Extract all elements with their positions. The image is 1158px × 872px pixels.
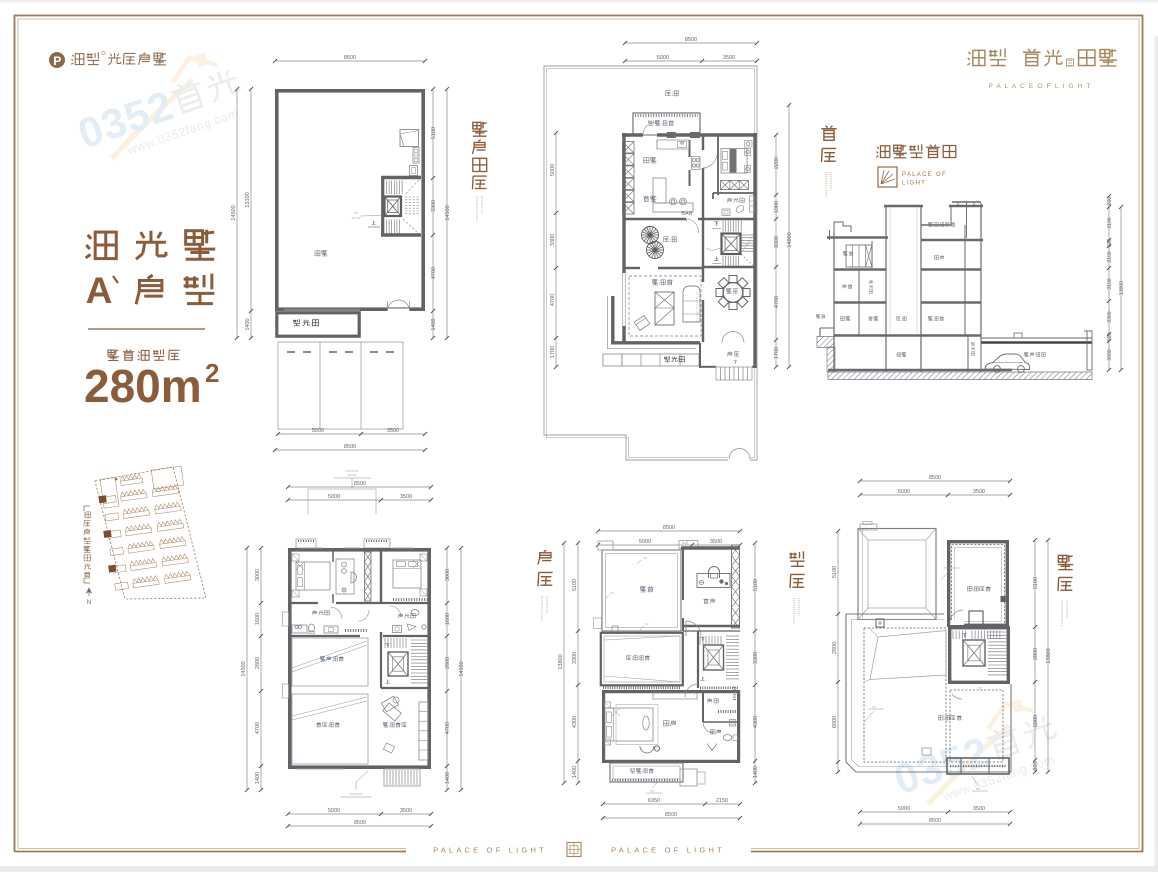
svg-text:2150: 2150	[716, 798, 728, 804]
svg-text:==: ==	[610, 591, 614, 595]
svg-text:1400: 1400	[431, 318, 437, 330]
svg-text:5000: 5000	[639, 539, 651, 545]
svg-text:2800: 2800	[445, 657, 451, 669]
svg-text:13800: 13800	[1046, 648, 1052, 663]
svg-text:13100: 13100	[245, 192, 251, 207]
svg-text:3300: 3300	[550, 234, 556, 246]
svg-text:1600: 1600	[255, 613, 261, 625]
svg-text:4700: 4700	[431, 267, 437, 279]
svg-text:6000: 6000	[1033, 715, 1039, 727]
svg-text:3300: 3300	[774, 236, 780, 248]
svg-text:3300: 3300	[753, 652, 759, 664]
svg-text:==: ==	[976, 787, 980, 791]
svg-text:13800: 13800	[558, 654, 564, 669]
svg-text:1700: 1700	[550, 346, 556, 358]
svg-text:600: 600	[1107, 197, 1113, 206]
svg-text:A: A	[86, 270, 113, 311]
svg-text:3300: 3300	[1107, 311, 1113, 322]
svg-text:6350: 6350	[648, 798, 660, 804]
svg-text:14500: 14500	[459, 661, 465, 676]
svg-text:3500: 3500	[710, 539, 722, 545]
svg-text:1400: 1400	[255, 772, 261, 784]
svg-text:13000: 13000	[1119, 281, 1125, 295]
svg-text:3100: 3100	[1107, 251, 1113, 262]
svg-text:5100: 5100	[753, 579, 759, 591]
svg-text:3500: 3500	[723, 55, 735, 61]
svg-text:3500: 3500	[400, 808, 412, 814]
svg-text:==: ==	[872, 705, 876, 709]
svg-text:3500: 3500	[400, 494, 412, 500]
svg-text:5000: 5000	[328, 808, 340, 814]
svg-text:3000: 3000	[445, 569, 451, 581]
svg-text:800: 800	[1033, 761, 1039, 770]
svg-text:5000: 5000	[657, 55, 669, 61]
svg-text:5000: 5000	[328, 494, 340, 500]
svg-text:3600: 3600	[1107, 349, 1113, 360]
svg-text:8500: 8500	[344, 444, 356, 450]
svg-text:P: P	[53, 54, 61, 68]
svg-text:3000: 3000	[255, 569, 261, 581]
svg-text:==: ==	[650, 789, 654, 793]
svg-text:3300: 3300	[572, 652, 578, 664]
svg-text:==: ==	[643, 556, 647, 560]
svg-text:5000: 5000	[312, 428, 324, 434]
svg-text:3300: 3300	[431, 200, 437, 212]
svg-text:14500: 14500	[231, 205, 237, 220]
svg-text:2800: 2800	[1033, 648, 1039, 660]
svg-text:14500: 14500	[445, 205, 451, 220]
svg-text:3500: 3500	[973, 806, 985, 812]
svg-text:1400: 1400	[753, 766, 759, 778]
svg-text:2: 2	[205, 358, 219, 388]
svg-text:3500: 3500	[387, 428, 399, 434]
svg-text:4300: 4300	[753, 716, 759, 728]
svg-text:5100: 5100	[832, 566, 838, 578]
svg-text:5000: 5000	[550, 164, 556, 176]
svg-text:8500: 8500	[929, 818, 941, 824]
svg-text:1700: 1700	[774, 347, 780, 359]
svg-text:5000: 5000	[898, 806, 910, 812]
svg-text:4700: 4700	[445, 722, 451, 734]
svg-text:==: ==	[354, 211, 358, 215]
svg-text:2800: 2800	[255, 657, 261, 669]
svg-text:PALACE OF LIGHT: PALACE OF LIGHT	[611, 846, 725, 855]
svg-text:5100: 5100	[431, 127, 437, 139]
svg-text:==: ==	[948, 564, 952, 568]
svg-text:LIGHT: LIGHT	[902, 181, 926, 187]
svg-text:8500: 8500	[354, 481, 366, 487]
svg-text:==: ==	[706, 247, 710, 251]
svg-text:4300: 4300	[572, 716, 578, 728]
svg-text:8500: 8500	[685, 37, 697, 43]
svg-text:1000: 1000	[774, 201, 780, 213]
svg-text:PALACE OF LIGHT: PALACE OF LIGHT	[433, 846, 547, 855]
svg-text:4700: 4700	[550, 294, 556, 306]
svg-text:=====: =====	[347, 474, 356, 478]
svg-text:=======: =======	[345, 469, 358, 473]
svg-text:600: 600	[1107, 333, 1113, 342]
svg-text:280m: 280m	[84, 360, 202, 412]
svg-text:8500: 8500	[354, 820, 366, 826]
svg-text:==: ==	[645, 622, 649, 626]
svg-text:1600: 1600	[445, 613, 451, 625]
svg-text:== ==: == ==	[352, 216, 361, 220]
svg-text:P A L A C E O F L I G H T: P A L A C E O F L I G H T	[988, 83, 1091, 90]
svg-text:4700: 4700	[774, 296, 780, 308]
svg-text:1400: 1400	[245, 318, 251, 330]
svg-text:=======: =======	[349, 792, 362, 796]
svg-text:8500: 8500	[663, 525, 675, 531]
svg-text:14500: 14500	[241, 661, 247, 676]
svg-text:14800: 14800	[787, 232, 793, 247]
svg-text:3500: 3500	[973, 489, 985, 495]
svg-text:2200: 2200	[774, 157, 780, 169]
svg-text:8500: 8500	[344, 55, 356, 61]
svg-text:2800: 2800	[832, 642, 838, 654]
svg-text:3100: 3100	[1107, 217, 1113, 228]
svg-text:5100: 5100	[572, 579, 578, 591]
svg-text:600: 600	[1107, 239, 1113, 248]
svg-text:BAR: BAR	[681, 211, 692, 217]
svg-text:5100: 5100	[1033, 577, 1039, 589]
svg-text:8500: 8500	[929, 475, 941, 481]
svg-text:N: N	[87, 599, 92, 606]
svg-text:5000: 5000	[898, 489, 910, 495]
svg-text:PALACE OF: PALACE OF	[902, 172, 947, 178]
svg-text:4700: 4700	[255, 722, 261, 734]
svg-text:1400: 1400	[572, 766, 578, 778]
svg-text:3100: 3100	[1107, 278, 1113, 289]
svg-text:8500: 8500	[665, 812, 677, 818]
svg-text:1400: 1400	[445, 772, 451, 784]
svg-text:6000: 6000	[832, 716, 838, 728]
